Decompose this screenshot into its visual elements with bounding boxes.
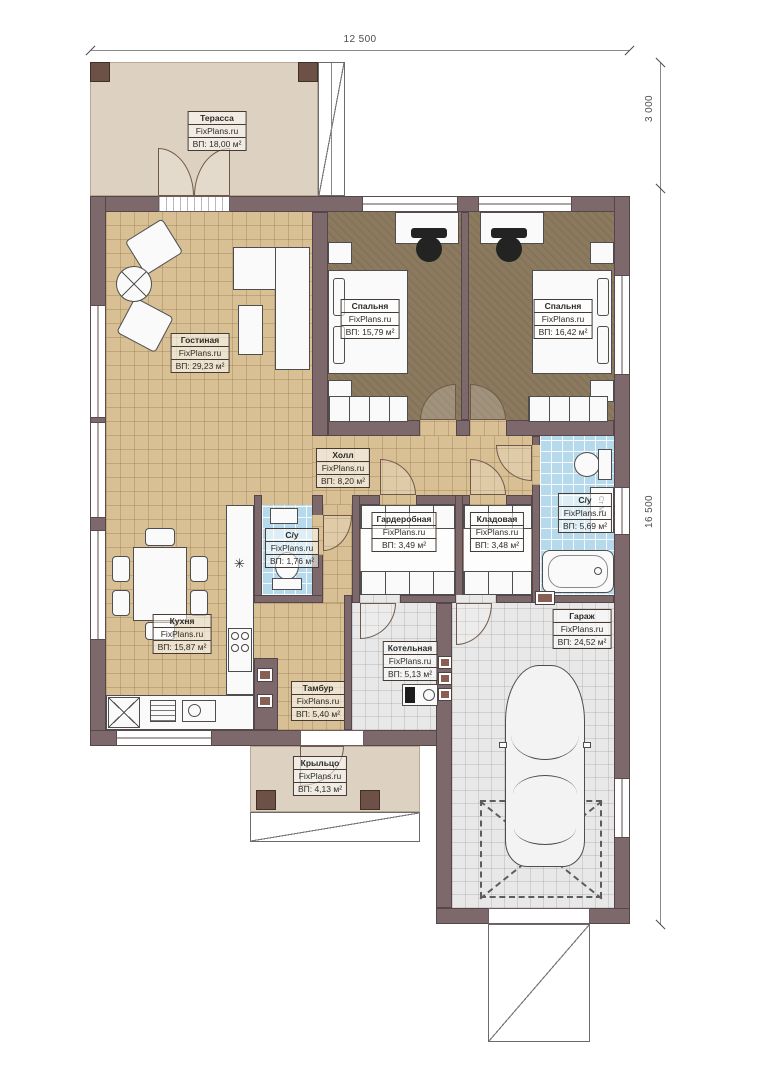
door-gap-bedroom-left <box>420 420 456 436</box>
terrace-door-threshold <box>158 196 230 212</box>
room-label-porch: Крыльцо FixPlans.ru ВП: 4,13 м² <box>293 756 347 796</box>
room-name: Кухня <box>154 615 211 628</box>
dimension-width-label: 12 500 <box>90 34 630 45</box>
brand-watermark: FixPlans.ru <box>292 695 344 708</box>
room-name: Спальня <box>535 300 592 313</box>
brand-watermark: FixPlans.ru <box>266 542 318 555</box>
dimension-line-top <box>90 50 630 51</box>
brand-watermark: FixPlans.ru <box>189 125 246 138</box>
vent-shaft <box>257 694 273 708</box>
nightstand <box>590 242 614 264</box>
room-area: ВП: 3,49 м² <box>373 539 436 551</box>
room-area: ВП: 16,42 м² <box>535 326 592 338</box>
room-label-boiler: Котельная FixPlans.ru ВП: 5,13 м² <box>383 641 438 681</box>
brand-watermark: FixPlans.ru <box>384 655 437 668</box>
room-label-wc: С/у FixPlans.ru ВП: 1,76 м² <box>265 528 319 568</box>
room-label-bathroom: С/у FixPlans.ru ВП: 5,69 м² <box>558 493 612 533</box>
wall-under-wc <box>254 595 323 603</box>
garage-apron <box>488 924 590 1042</box>
stove-burner <box>231 632 239 640</box>
room-area: ВП: 5,13 м² <box>384 668 437 680</box>
office-chair <box>416 236 442 262</box>
window-bedroom-right-side <box>614 275 630 375</box>
brand-watermark: FixPlans.ru <box>317 462 369 475</box>
window-bedroom-right <box>478 196 572 212</box>
sofa-right-section <box>275 247 310 370</box>
brand-watermark: FixPlans.ru <box>471 526 523 539</box>
room-label-living: Гостиная FixPlans.ru ВП: 29,23 м² <box>171 333 230 373</box>
brand-watermark: FixPlans.ru <box>535 313 592 326</box>
wall-under-wardrobe <box>400 595 456 603</box>
room-area: ВП: 15,79 м² <box>342 326 399 338</box>
room-label-garage: Гараж FixPlans.ru ВП: 24,52 м² <box>553 609 612 649</box>
dish-rack <box>150 700 176 722</box>
porch-column <box>256 790 276 810</box>
terrace-column <box>90 62 110 82</box>
wall-wardrobe-left <box>352 495 360 603</box>
room-name: С/у <box>266 529 318 542</box>
brand-watermark: FixPlans.ru <box>154 628 211 641</box>
room-name: Холл <box>317 449 369 462</box>
door-gap-bathroom <box>532 445 540 485</box>
room-label-vestibule: Тамбур FixPlans.ru ВП: 5,40 м² <box>291 681 345 721</box>
porch-steps <box>250 812 420 842</box>
closet <box>528 396 608 422</box>
office-chair <box>496 236 522 262</box>
wall-bedroom-divider <box>461 212 469 420</box>
wc-sink <box>270 508 298 524</box>
vent-shaft <box>438 688 452 701</box>
room-area: ВП: 1,76 м² <box>266 555 318 567</box>
brand-watermark: FixPlans.ru <box>294 770 346 783</box>
room-label-kitchen: Кухня FixPlans.ru ВП: 15,87 м² <box>153 614 212 654</box>
toilet-bowl <box>574 452 600 477</box>
pillow <box>597 278 609 316</box>
terrace-column <box>298 62 318 82</box>
dining-chair <box>190 556 208 582</box>
pillow <box>597 326 609 364</box>
room-area: ВП: 24,52 м² <box>554 636 611 648</box>
room-area: ВП: 29,23 м² <box>172 360 229 372</box>
closet <box>328 396 408 422</box>
porch-column <box>360 790 380 810</box>
brand-watermark: FixPlans.ru <box>342 313 399 326</box>
coffee-table <box>238 305 263 355</box>
door-gap-garage <box>456 595 496 603</box>
door-gap-bedroom-right <box>470 420 506 436</box>
room-label-bedroom-right: Спальня FixPlans.ru ВП: 16,42 м² <box>534 299 593 339</box>
stove-burner <box>241 644 249 652</box>
window-living-1 <box>90 305 106 418</box>
window-kitchen-bottom <box>116 730 212 746</box>
room-area: ВП: 4,13 м² <box>294 783 346 795</box>
door-gap-front <box>300 730 364 746</box>
office-chair-back <box>411 228 447 238</box>
room-area: ВП: 5,69 м² <box>559 520 611 532</box>
window-bathroom <box>614 487 630 535</box>
wardrobe-shelf <box>360 571 455 595</box>
wall-below-bedrooms <box>506 420 614 436</box>
window-living-2 <box>90 422 106 518</box>
dimension-height-label: 16 500 <box>644 495 655 528</box>
room-name: С/у <box>559 494 611 507</box>
door-gap-boiler <box>360 595 400 603</box>
wc-toilet-tank <box>272 578 302 590</box>
office-chair-back <box>491 228 527 238</box>
storage-shelf <box>463 571 532 595</box>
sink-bowl <box>188 704 201 717</box>
room-label-wardrobe: Гардеробная FixPlans.ru ВП: 3,49 м² <box>372 512 437 552</box>
bathtub-drain <box>594 567 602 575</box>
room-area: ВП: 3,48 м² <box>471 539 523 551</box>
wall-bedroom-left <box>312 212 328 436</box>
room-name: Котельная <box>384 642 437 655</box>
dining-chair <box>112 590 130 616</box>
boiler-unit-dial <box>423 689 435 701</box>
brand-watermark: FixPlans.ru <box>554 623 611 636</box>
wall-garage-left <box>436 603 452 908</box>
dimension-width-value: 12 500 <box>344 34 377 45</box>
dimension-line-height <box>660 188 661 925</box>
floor-plan: 12 500 3 000 16 500 <box>0 0 763 1080</box>
kitchen-symbol: ✳ <box>234 556 245 572</box>
window-bedroom-left <box>362 196 458 212</box>
stove-burner <box>241 632 249 640</box>
window-kitchen-left <box>90 530 106 640</box>
chimney <box>535 591 555 605</box>
terrace-side-stairs <box>318 62 345 196</box>
vent-shaft <box>257 668 273 682</box>
room-area: ВП: 5,40 м² <box>292 708 344 720</box>
room-name: Спальня <box>342 300 399 313</box>
boiler-unit-panel <box>405 687 415 703</box>
brand-watermark: FixPlans.ru <box>172 347 229 360</box>
room-name: Гараж <box>554 610 611 623</box>
vent-shaft <box>438 656 452 669</box>
room-label-bedroom-left: Спальня FixPlans.ru ВП: 15,79 м² <box>341 299 400 339</box>
room-area: ВП: 8,20 м² <box>317 475 369 487</box>
wall-wardrobe-storage <box>455 495 463 603</box>
wall-wc-left <box>254 495 262 603</box>
car-mirror <box>499 742 507 748</box>
dining-chair <box>145 528 175 546</box>
wall-below-bedrooms <box>456 420 470 436</box>
toilet-tank <box>598 449 612 480</box>
dimension-terrace-depth-label: 3 000 <box>644 95 655 122</box>
garage-gate-gap <box>488 908 590 924</box>
appliance-square <box>108 697 140 728</box>
room-name: Терасса <box>189 112 246 125</box>
room-name: Гостиная <box>172 334 229 347</box>
nightstand <box>328 242 352 264</box>
room-area: ВП: 15,87 м² <box>154 641 211 653</box>
room-name: Тамбур <box>292 682 344 695</box>
room-label-storage: Кладовая FixPlans.ru ВП: 3,48 м² <box>470 512 524 552</box>
window-garage <box>614 778 630 838</box>
room-label-hall: Холл FixPlans.ru ВП: 8,20 м² <box>316 448 370 488</box>
wall-hall-bottom <box>506 495 532 505</box>
stove-burner <box>231 644 239 652</box>
brand-watermark: FixPlans.ru <box>559 507 611 520</box>
room-area: ВП: 18,00 м² <box>189 138 246 150</box>
vent-shaft <box>438 672 452 685</box>
dining-table <box>133 547 187 621</box>
room-name: Крыльцо <box>294 757 346 770</box>
wall-vestibule-boiler <box>344 595 352 730</box>
dimension-line-terrace-depth <box>660 62 661 188</box>
brand-watermark: FixPlans.ru <box>373 526 436 539</box>
car-mirror <box>583 742 591 748</box>
wall-below-bedrooms <box>328 420 420 436</box>
room-label-terrace: Терасса FixPlans.ru ВП: 18,00 м² <box>188 111 247 151</box>
room-name: Гардеробная <box>373 513 436 526</box>
dining-chair <box>190 590 208 616</box>
round-side-table <box>116 266 152 302</box>
dining-chair <box>112 556 130 582</box>
wall-under-storage <box>496 595 532 603</box>
room-name: Кладовая <box>471 513 523 526</box>
